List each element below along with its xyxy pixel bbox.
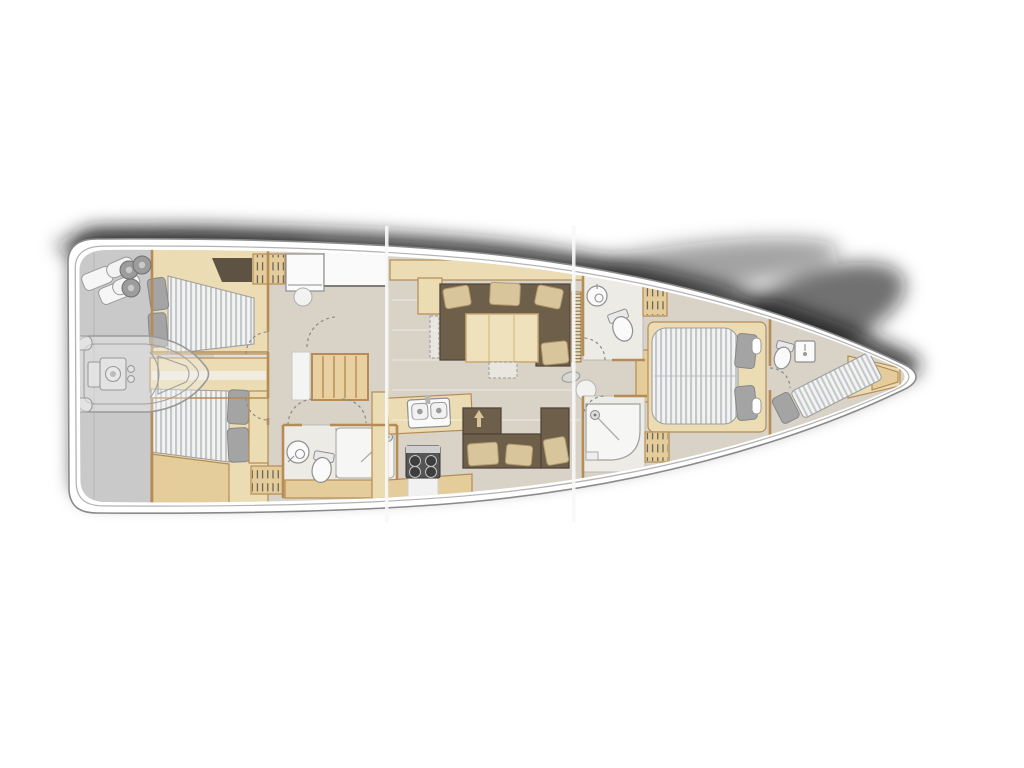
drain-tray bbox=[586, 452, 598, 460]
arrow-stem bbox=[477, 418, 481, 427]
stove-controls bbox=[406, 446, 440, 453]
fender-end-cap bbox=[128, 285, 134, 291]
burner bbox=[426, 456, 437, 467]
aft-cabin-port bbox=[147, 240, 285, 354]
interior bbox=[64, 236, 920, 516]
companionway bbox=[292, 352, 368, 400]
salon-table bbox=[466, 314, 538, 362]
fender-end-cap bbox=[126, 267, 132, 273]
section-seam bbox=[572, 226, 576, 522]
reading-light bbox=[752, 398, 761, 414]
showerhead-dot bbox=[594, 414, 597, 417]
nav-seat bbox=[294, 288, 312, 306]
folding-seat-outline bbox=[430, 316, 439, 358]
sofa-back-port bbox=[463, 408, 501, 434]
burner bbox=[410, 456, 421, 467]
outboard-knob bbox=[128, 376, 135, 383]
drain bbox=[803, 352, 807, 356]
wardrobe-hanger-icon bbox=[646, 433, 668, 461]
yacht-floor-plan bbox=[0, 0, 1024, 768]
fender-end-cap bbox=[139, 262, 145, 268]
section-seam bbox=[385, 226, 389, 522]
tap-icon bbox=[425, 395, 430, 404]
outboard-shaft bbox=[88, 362, 100, 387]
landing-panel bbox=[292, 352, 310, 400]
sofa-cushion bbox=[467, 442, 498, 466]
galley-island bbox=[387, 393, 473, 434]
pillow bbox=[227, 427, 250, 462]
burner bbox=[426, 467, 437, 478]
sofa-cushion bbox=[541, 341, 569, 366]
sofa-cushion bbox=[489, 282, 520, 306]
outboard-knob bbox=[128, 366, 135, 373]
wardrobe-hanger-icon bbox=[252, 467, 282, 493]
outboard-hub bbox=[110, 371, 116, 377]
burner bbox=[410, 467, 421, 478]
sofa-cushion bbox=[505, 444, 533, 466]
table-extension bbox=[489, 362, 517, 378]
companionway-stairs bbox=[312, 354, 368, 400]
sofa-cushion bbox=[442, 285, 471, 309]
sideboard-corner bbox=[418, 278, 442, 314]
reading-light bbox=[752, 338, 761, 354]
pillow bbox=[147, 277, 169, 311]
yacht-floor-plan-canvas bbox=[0, 0, 1024, 768]
headboard-shelf bbox=[249, 391, 268, 463]
pillow bbox=[227, 389, 250, 424]
sofa-cushion bbox=[543, 436, 569, 465]
wardrobe-hanger-icon bbox=[644, 287, 666, 315]
